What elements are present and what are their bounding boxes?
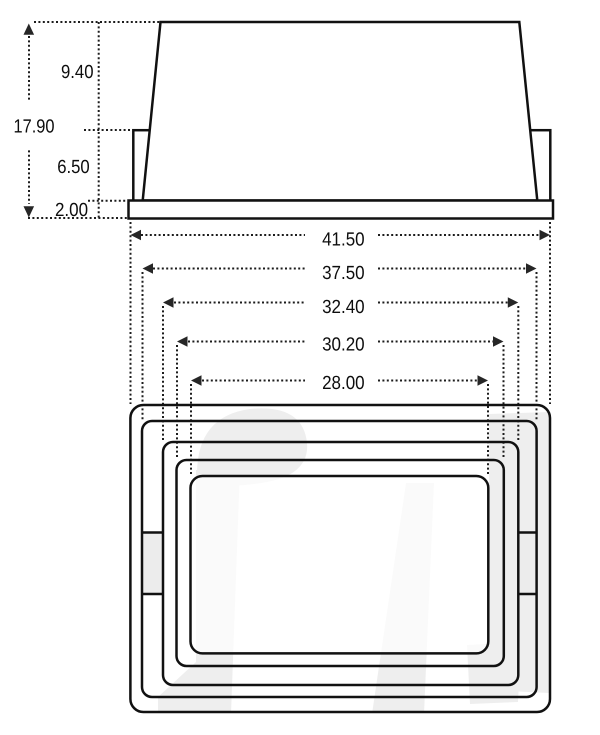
svg-text:37.50: 37.50 [322, 263, 365, 284]
svg-text:9.40: 9.40 [61, 62, 94, 83]
svg-text:2.00: 2.00 [55, 200, 88, 221]
svg-text:32.40: 32.40 [322, 297, 365, 318]
svg-text:41.50: 41.50 [322, 230, 365, 251]
svg-text:17.90: 17.90 [14, 117, 55, 138]
svg-text:30.20: 30.20 [322, 335, 365, 356]
svg-text:6.50: 6.50 [57, 157, 89, 178]
svg-text:28.00: 28.00 [322, 373, 365, 394]
